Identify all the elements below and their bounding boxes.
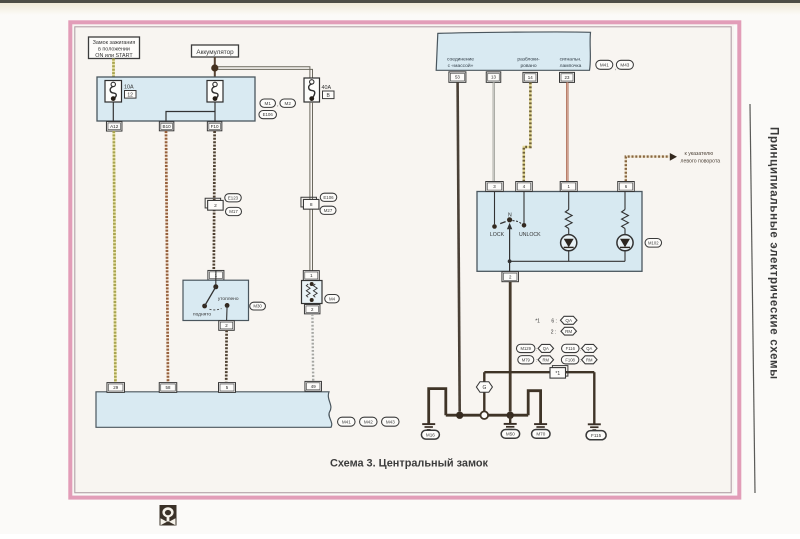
svg-text:G: G [482, 385, 486, 391]
svg-text:E123: E123 [228, 195, 239, 200]
svg-text:сигнальн.: сигнальн. [560, 58, 582, 63]
svg-text:ON или START: ON или START [95, 53, 133, 59]
svg-text:E106: E106 [263, 112, 274, 117]
svg-text:F108: F108 [565, 357, 575, 362]
svg-text:6 :: 6 : [551, 318, 557, 324]
svg-text:*1: *1 [555, 371, 560, 377]
svg-text:23: 23 [565, 75, 570, 80]
svg-text:M2: M2 [285, 101, 292, 106]
svg-text:утоплено: утоплено [218, 297, 239, 302]
svg-text:QA: QA [543, 346, 549, 351]
svg-text:в положении: в положении [98, 47, 130, 53]
svg-text:M102: M102 [648, 240, 659, 245]
svg-text:M4: M4 [329, 296, 336, 301]
svg-text:с «массой»: с «массой» [448, 62, 474, 69]
svg-text:M16: M16 [426, 432, 435, 437]
svg-text:Замок зажигания: Замок зажигания [93, 40, 136, 46]
svg-text:M129: M129 [520, 346, 531, 351]
svg-text:58: 58 [166, 385, 171, 390]
svg-text:поднято: поднято [193, 313, 211, 318]
svg-text:M50: M50 [506, 432, 515, 437]
svg-text:14: 14 [528, 75, 533, 80]
svg-text:53: 53 [455, 75, 460, 80]
svg-text:2: 2 [214, 203, 217, 209]
svg-text:лампочка: лампочка [560, 64, 582, 69]
svg-text:F116: F116 [566, 346, 576, 351]
svg-text:QA: QA [586, 346, 592, 351]
svg-text:LOCK: LOCK [490, 232, 505, 238]
svg-text:M41: M41 [342, 419, 351, 424]
svg-text:,: , [615, 66, 616, 72]
svg-text:F115: F115 [591, 433, 602, 438]
svg-text:к указателю: к указателю [684, 151, 713, 157]
svg-text:*1: *1 [535, 318, 540, 324]
svg-text::: : [536, 346, 537, 351]
svg-text:M42: M42 [364, 419, 373, 424]
svg-text:12: 12 [127, 92, 133, 98]
svg-text:10A: 10A [124, 84, 134, 90]
svg-text:RM: RM [543, 357, 550, 362]
svg-text:UNLOCK: UNLOCK [519, 232, 541, 238]
svg-text:M1: M1 [265, 101, 272, 106]
svg-text:RM: RM [586, 357, 593, 362]
svg-text:M43: M43 [386, 419, 395, 424]
svg-text:RM: RM [565, 329, 572, 334]
svg-text:M70: M70 [536, 432, 545, 437]
svg-text:F10: F10 [211, 124, 219, 129]
svg-text:M79: M79 [522, 357, 531, 362]
svg-text:E106: E106 [323, 195, 334, 200]
svg-text:13: 13 [491, 75, 496, 80]
svg-text:29: 29 [113, 385, 118, 390]
svg-text:левого поворота: левого поворота [680, 158, 720, 164]
svg-text:N: N [508, 212, 512, 218]
svg-text:Аккумулятор: Аккумулятор [196, 49, 234, 56]
svg-text::: : [536, 358, 537, 363]
svg-text:ровано: ровано [520, 64, 536, 69]
svg-text:M30: M30 [253, 304, 262, 309]
svg-text:49: 49 [311, 384, 316, 389]
svg-text:M43: M43 [620, 62, 629, 67]
svg-text:A12: A12 [110, 124, 119, 129]
svg-text:,: , [277, 102, 278, 108]
svg-text:B10: B10 [163, 124, 172, 129]
svg-text:Схема 3. Центральный замок: Схема 3. Центральный замок [330, 458, 489, 470]
svg-text:разблоки-: разблоки- [517, 57, 540, 63]
svg-text:M17: M17 [229, 209, 238, 214]
svg-text::: : [580, 346, 581, 351]
svg-text:M27: M27 [324, 208, 333, 213]
svg-text::: : [580, 358, 581, 363]
svg-text:соединение: соединение [447, 58, 474, 63]
svg-text:QA: QA [565, 318, 573, 323]
svg-text:Принципиальные электрические с: Принципиальные электрические схемы [768, 127, 780, 380]
svg-text:40A: 40A [322, 85, 332, 91]
svg-text:M41: M41 [600, 62, 609, 67]
svg-text:8: 8 [310, 202, 313, 208]
svg-text:2 :: 2 : [551, 329, 557, 335]
